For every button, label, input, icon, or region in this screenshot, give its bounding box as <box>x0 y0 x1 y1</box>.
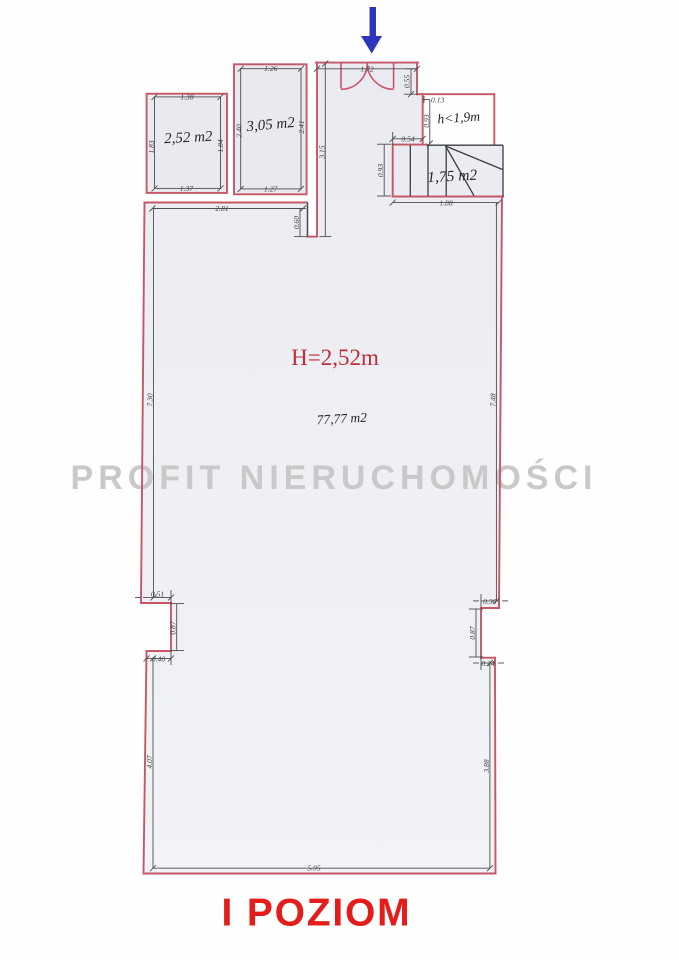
svg-text:77,77 m2: 77,77 m2 <box>316 410 367 428</box>
svg-text:0.30: 0.30 <box>483 597 496 606</box>
svg-text:1.38: 1.38 <box>180 93 193 102</box>
svg-text:5.95: 5.95 <box>307 864 320 873</box>
svg-text:I POZIOM: I POZIOM <box>222 892 412 935</box>
svg-text:0.13: 0.13 <box>431 95 444 104</box>
svg-text:4.07: 4.07 <box>145 754 154 768</box>
svg-text:0.60: 0.60 <box>292 216 301 229</box>
svg-text:0.87: 0.87 <box>468 625 477 639</box>
svg-text:3.15: 3.15 <box>318 145 327 159</box>
svg-text:1.83: 1.83 <box>147 140 156 153</box>
svg-text:0.51: 0.51 <box>151 590 164 599</box>
svg-text:0.87: 0.87 <box>169 620 178 634</box>
svg-text:1.84: 1.84 <box>216 139 225 152</box>
svg-text:1.37: 1.37 <box>180 184 194 193</box>
svg-text:h<1,9m: h<1,9m <box>437 109 481 127</box>
svg-text:0.55: 0.55 <box>403 75 412 88</box>
svg-text:1.26: 1.26 <box>264 64 277 73</box>
svg-text:0.40: 0.40 <box>152 654 165 663</box>
svg-text:PROFIT NIERUCHOMOŚCI: PROFIT NIERUCHOMOŚCI <box>71 459 598 497</box>
svg-text:1,75 m2: 1,75 m2 <box>427 167 478 187</box>
svg-text:7.48: 7.48 <box>488 393 497 406</box>
svg-text:0.93: 0.93 <box>376 164 385 177</box>
svg-text:1.88: 1.88 <box>439 199 452 208</box>
svg-text:2.81: 2.81 <box>215 204 228 213</box>
svg-text:0.54: 0.54 <box>401 134 414 143</box>
svg-text:1.72: 1.72 <box>360 65 373 74</box>
svg-text:0.93: 0.93 <box>422 114 431 127</box>
svg-text:2.41: 2.41 <box>297 120 306 133</box>
svg-text:3.88: 3.88 <box>482 759 491 773</box>
svg-text:H=2,52m: H=2,52m <box>291 345 379 370</box>
svg-text:2,52 m2: 2,52 m2 <box>164 129 214 148</box>
svg-text:2.40: 2.40 <box>235 124 244 137</box>
svg-text:1.27: 1.27 <box>264 185 278 194</box>
svg-text:7.30: 7.30 <box>146 393 155 406</box>
